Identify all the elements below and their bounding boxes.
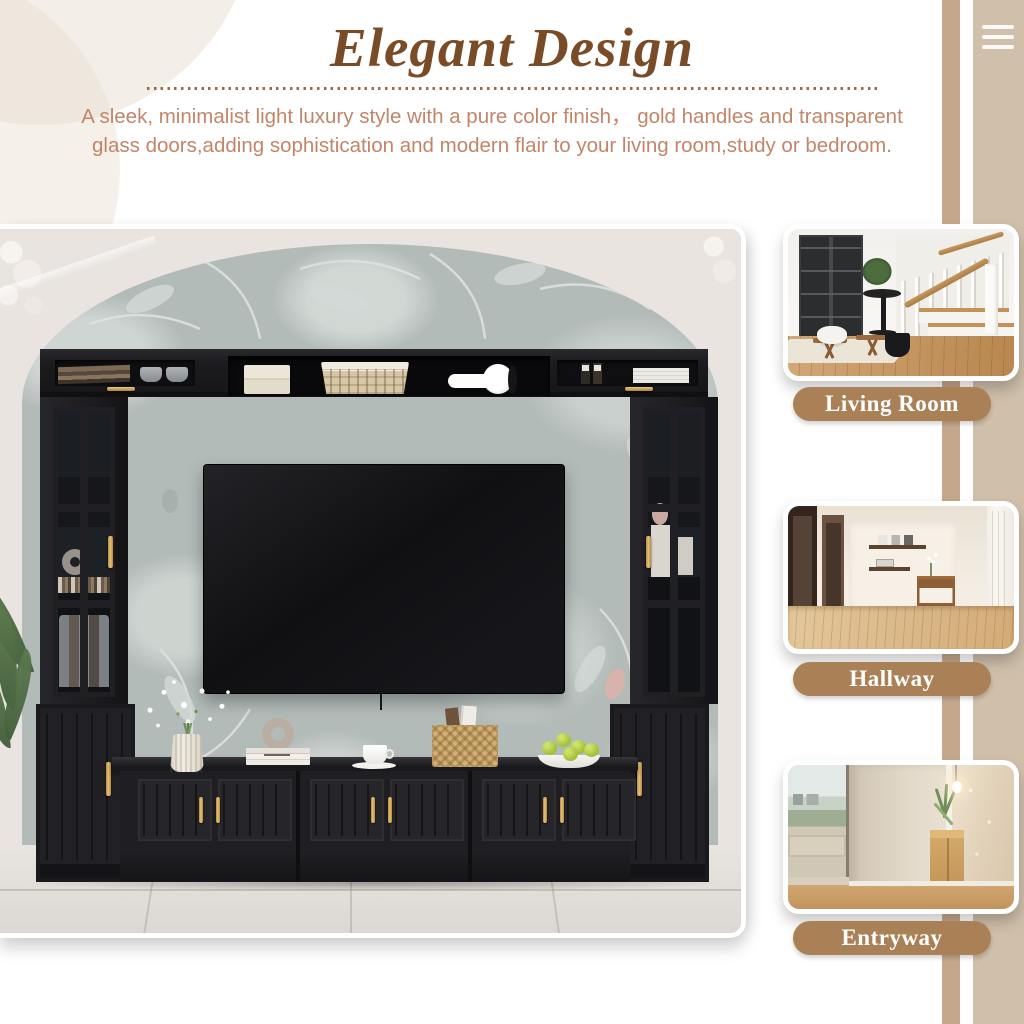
side-table-leg (881, 295, 887, 333)
shelf-picture-frame (876, 559, 894, 568)
green-apple (584, 743, 599, 757)
pendant-light (952, 781, 962, 793)
room-card-living-room (783, 224, 1019, 381)
headphones-earcup-ring (508, 365, 517, 394)
balcony-window-view (788, 765, 849, 877)
arch-ornament-right (693, 229, 745, 299)
gold-handle (107, 387, 135, 391)
description-line-2: glass doors,adding sophistication and mo… (40, 131, 944, 160)
book-spine-decor (581, 363, 590, 384)
console-apron (917, 579, 955, 588)
room-card-hallway (783, 501, 1019, 654)
wicker-basket-decor (321, 362, 409, 394)
green-apple (542, 741, 557, 755)
pendant-cord (955, 765, 957, 782)
wood-floor (788, 885, 1014, 909)
city-view (793, 794, 828, 805)
floating-shelf (869, 567, 910, 571)
baseboard (849, 881, 1014, 886)
product-photo-entertainment-center (0, 224, 746, 938)
glass-door-mullions (53, 407, 115, 697)
potted-plant (858, 254, 896, 289)
stand-door (218, 779, 292, 841)
green-apple (556, 733, 571, 747)
coffee-cup (363, 745, 387, 764)
gold-handle (388, 797, 392, 823)
ring-sculpture (262, 718, 294, 750)
description-line-1: A sleek, minimalist light luxury style w… (40, 102, 944, 131)
black-bag (885, 333, 910, 357)
gold-handle (543, 797, 547, 823)
stand-section-seam (296, 771, 300, 882)
gold-handle (371, 797, 375, 823)
gold-handle (108, 536, 113, 568)
gold-handle (199, 797, 203, 823)
book-spine-decor (593, 363, 602, 384)
gold-handle (216, 797, 220, 823)
left-tower-glass-door (53, 407, 115, 697)
wood-cabinet (930, 830, 964, 888)
throw-blanket (817, 326, 846, 344)
stand-section-seam (468, 771, 472, 882)
gold-handle (646, 536, 651, 568)
right-tower-glass-door (643, 407, 705, 697)
promo-page: Elegant Design A sleek, minimalist light… (0, 0, 1024, 1024)
green-apple (563, 747, 578, 761)
room-label-living-room: Living Room (793, 387, 991, 421)
coffee-table-books (246, 748, 310, 765)
tv-cable (380, 692, 382, 710)
floating-shelf (869, 545, 926, 549)
dotted-divider (147, 87, 877, 90)
room-label-entryway: Entryway (793, 921, 991, 955)
black-french-door (799, 235, 862, 341)
ribbed-vase (170, 734, 204, 772)
glass-door-mullions (643, 407, 705, 697)
cup-handle (385, 749, 394, 759)
stand-door (562, 779, 636, 841)
description-text: A sleek, minimalist light luxury style w… (40, 102, 944, 160)
storage-boxes-decor (244, 365, 290, 394)
wood-floor (788, 606, 1014, 649)
vase-flowers (921, 550, 948, 567)
cup-decor (166, 367, 188, 382)
page-title: Elegant Design (0, 16, 1024, 79)
room-label-hallway: Hallway (793, 662, 991, 696)
gold-handle (560, 797, 564, 823)
stacked-books-decor (58, 365, 130, 385)
gold-handle (106, 762, 111, 796)
tv-screen (203, 464, 565, 694)
room-card-entryway (783, 760, 1019, 914)
shelf-picture-frames (878, 535, 914, 545)
dark-door-frame (822, 515, 845, 621)
woven-basket (432, 725, 498, 767)
tv-stand-plinth (120, 849, 630, 882)
newel-post (985, 264, 999, 335)
balcony-rug (788, 835, 846, 857)
gold-handle (625, 387, 653, 391)
stand-door (390, 779, 464, 841)
paper-stack-decor (633, 368, 689, 383)
cup-decor (140, 367, 162, 382)
